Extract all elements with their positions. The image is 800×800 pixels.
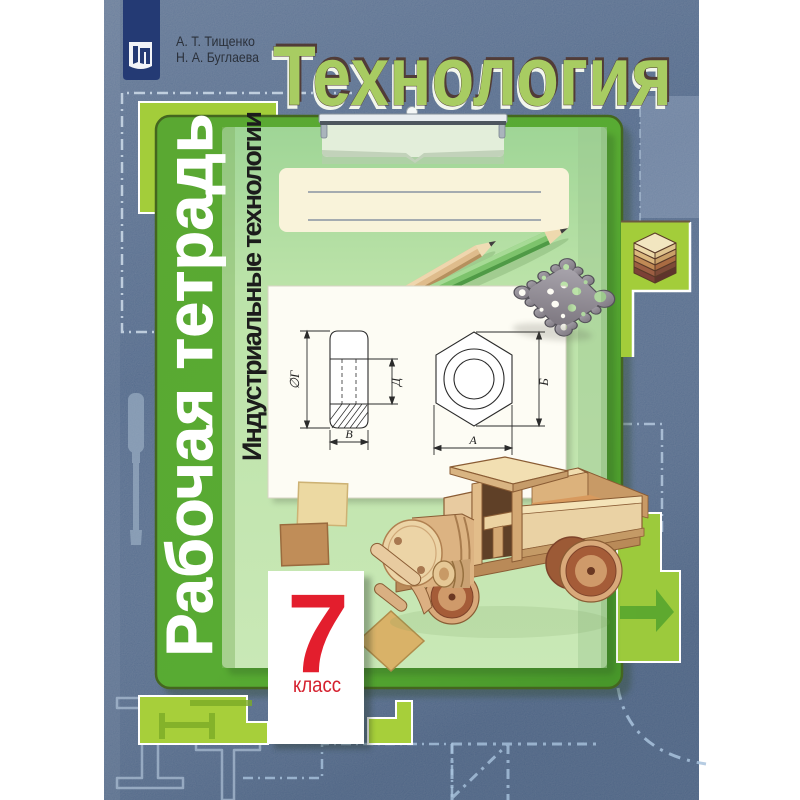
svg-text:∅Г: ∅Г [287, 370, 302, 389]
svg-text:Технология: Технология [273, 29, 672, 123]
svg-text:Индустриальные технологии: Индустриальные технологии [237, 111, 267, 461]
svg-text:Б: Б [536, 378, 551, 387]
svg-text:А. Т. Тищенко: А. Т. Тищенко [176, 33, 255, 49]
svg-text:В: В [345, 427, 353, 441]
svg-text:Рабочая тетрадь: Рабочая тетрадь [154, 114, 226, 657]
svg-text:А: А [468, 433, 477, 447]
svg-text:Н. А. Буглаева: Н. А. Буглаева [176, 49, 259, 65]
svg-text:Д: Д [388, 377, 403, 388]
svg-text:класс: класс [293, 674, 341, 697]
